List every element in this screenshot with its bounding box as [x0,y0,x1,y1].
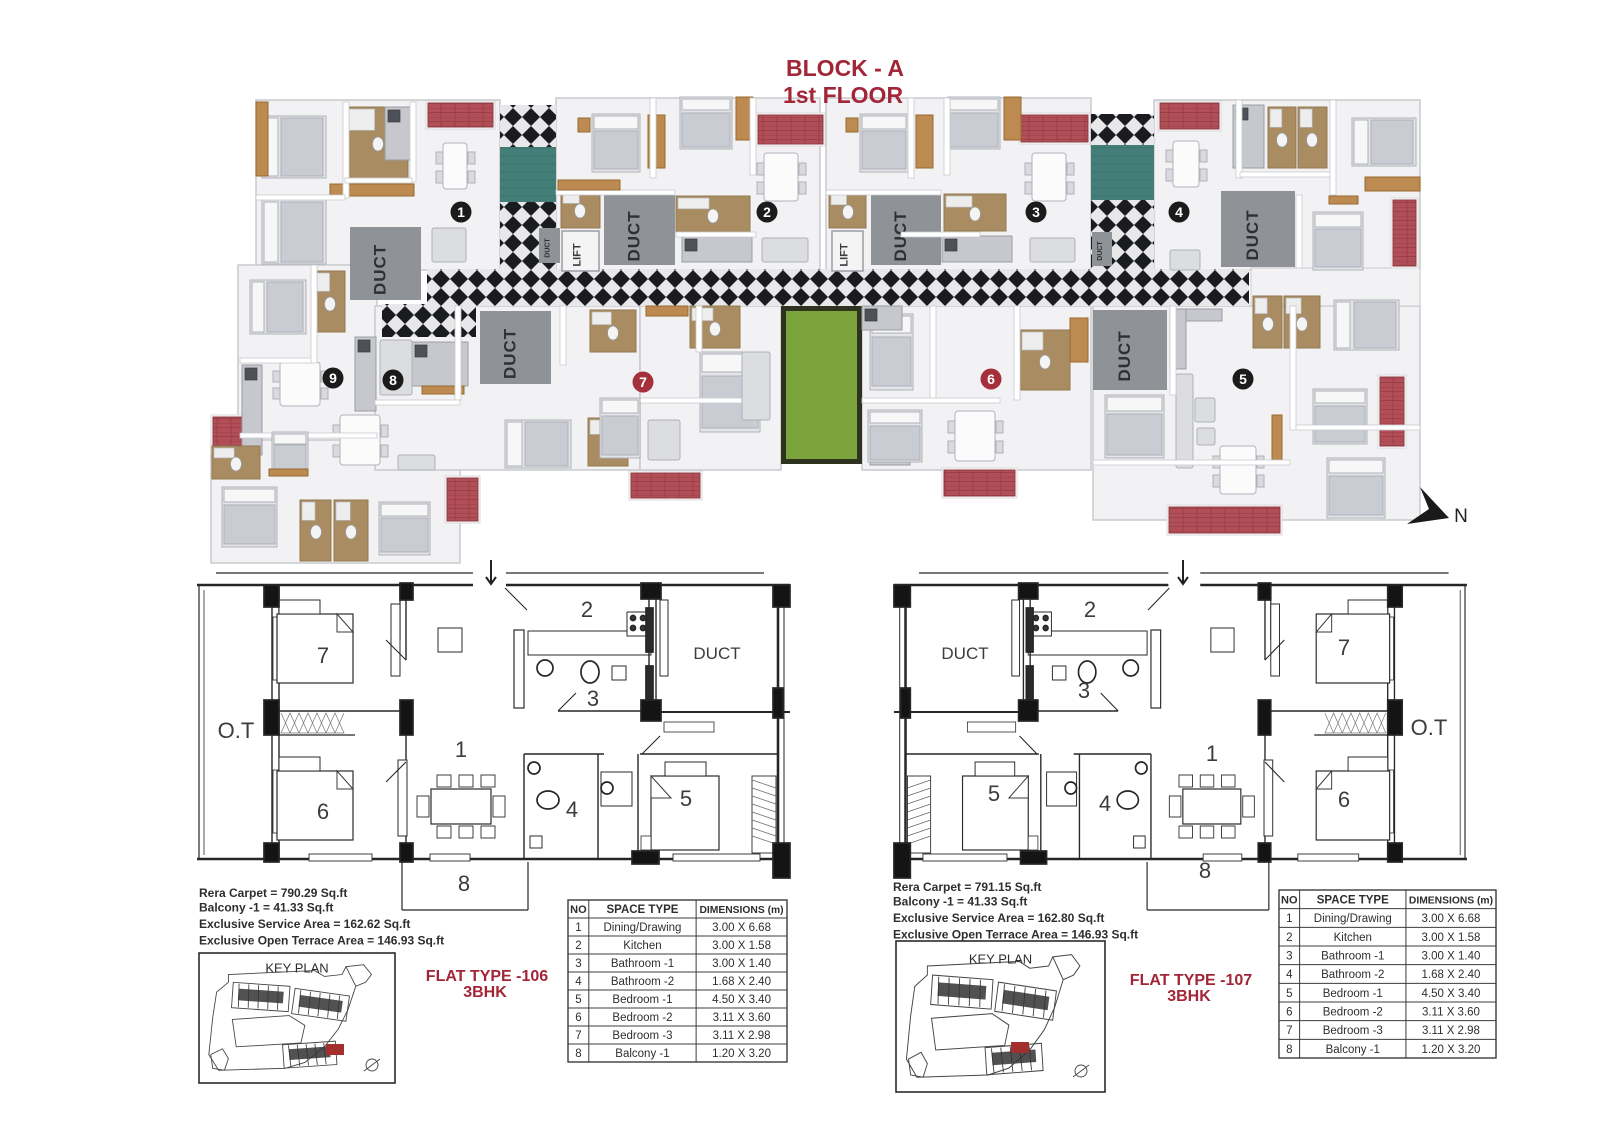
svg-text:Bedroom -2: Bedroom -2 [1323,1006,1383,1018]
svg-text:3.00 X 6.68: 3.00 X 6.68 [712,922,771,934]
svg-text:Dining/Drawing: Dining/Drawing [603,922,681,934]
svg-text:Bedroom -3: Bedroom -3 [612,1030,672,1042]
svg-text:DUCT: DUCT [1243,209,1262,260]
svg-text:9: 9 [329,370,337,386]
svg-text:8: 8 [575,1048,581,1060]
svg-text:BLOCK - A: BLOCK - A [786,55,904,81]
svg-text:Bathroom -2: Bathroom -2 [1321,969,1384,981]
svg-text:KEY PLAN: KEY PLAN [969,952,1032,967]
svg-text:4.50 X 3.40: 4.50 X 3.40 [712,994,771,1006]
svg-text:3.00 X 1.40: 3.00 X 1.40 [1422,950,1481,962]
svg-text:3: 3 [1286,950,1292,962]
svg-text:2: 2 [575,940,581,952]
svg-text:3: 3 [575,958,581,970]
svg-text:3: 3 [587,686,599,711]
svg-text:Bedroom -1: Bedroom -1 [612,994,672,1006]
svg-text:DIMENSIONS (m): DIMENSIONS (m) [700,905,784,916]
svg-text:LIFT: LIFT [839,243,851,266]
svg-text:DIMENSIONS (m): DIMENSIONS (m) [1409,895,1493,906]
svg-text:3.11 X 2.98: 3.11 X 2.98 [1422,1025,1480,1037]
svg-text:NO: NO [1281,894,1298,906]
svg-text:DUCT: DUCT [941,644,988,663]
svg-text:8: 8 [389,372,397,388]
svg-text:LIFT: LIFT [572,243,584,266]
svg-text:6: 6 [1338,787,1350,812]
svg-text:Exclusive Service Area = 162.8: Exclusive Service Area = 162.80 Sq.ft [893,911,1104,925]
svg-text:3.00 X 1.58: 3.00 X 1.58 [1422,932,1481,944]
svg-text:2: 2 [1286,932,1292,944]
svg-text:1.68 X 2.40: 1.68 X 2.40 [712,976,771,988]
svg-text:4: 4 [1099,791,1111,816]
svg-text:7: 7 [575,1030,581,1042]
svg-text:Balcony -1 = 41.33 Sq.ft: Balcony -1 = 41.33 Sq.ft [893,895,1027,909]
svg-text:5: 5 [575,994,581,1006]
svg-text:3.00 X 1.58: 3.00 X 1.58 [712,940,771,952]
svg-text:3.11 X 2.98: 3.11 X 2.98 [713,1030,771,1042]
svg-text:4: 4 [1175,204,1183,220]
svg-text:3: 3 [1032,204,1040,220]
svg-text:1.20 X 3.20: 1.20 X 3.20 [712,1048,771,1060]
svg-text:Bedroom -3: Bedroom -3 [1323,1025,1383,1037]
svg-text:5: 5 [988,781,1000,806]
svg-text:6: 6 [1286,1006,1292,1018]
svg-text:Bathroom -1: Bathroom -1 [1321,950,1384,962]
svg-text:Balcony -1 = 41.33 Sq.ft: Balcony -1 = 41.33 Sq.ft [199,901,333,915]
svg-text:1: 1 [575,922,581,934]
svg-text:1.20 X 3.20: 1.20 X 3.20 [1422,1044,1481,1056]
svg-text:5: 5 [680,786,692,811]
svg-text:SPACE TYPE: SPACE TYPE [606,904,678,916]
svg-text:1: 1 [455,737,467,762]
svg-text:FLAT TYPE -107: FLAT TYPE -107 [1130,972,1252,989]
svg-text:Exclusive Open Terrace Area =: Exclusive Open Terrace Area = 146.93 Sq.… [199,934,444,948]
svg-text:1st FLOOR: 1st FLOOR [783,82,904,108]
svg-text:1: 1 [457,204,465,220]
svg-text:Rera Carpet = 790.29 Sq.ft: Rera Carpet = 790.29 Sq.ft [199,886,347,900]
svg-text:Bathroom -2: Bathroom -2 [611,976,674,988]
svg-text:DUCT: DUCT [545,238,552,258]
svg-text:SPACE TYPE: SPACE TYPE [1317,894,1389,906]
svg-text:7: 7 [639,374,647,390]
svg-text:1: 1 [1206,741,1218,766]
svg-text:3.00 X 6.68: 3.00 X 6.68 [1422,913,1481,925]
svg-text:7: 7 [317,643,329,668]
svg-text:3.11 X 3.60: 3.11 X 3.60 [1422,1006,1480,1018]
svg-text:Bedroom -2: Bedroom -2 [612,1012,672,1024]
svg-text:1.68 X 2.40: 1.68 X 2.40 [1422,969,1481,981]
svg-text:3BHK: 3BHK [1167,988,1211,1005]
svg-text:O.T: O.T [218,718,255,743]
svg-text:8: 8 [1286,1044,1292,1056]
svg-text:8: 8 [1199,858,1211,883]
svg-text:DUCT: DUCT [693,644,740,663]
svg-text:8: 8 [458,871,470,896]
svg-text:4: 4 [1286,969,1293,981]
svg-text:Bedroom -1: Bedroom -1 [1323,988,1383,1000]
svg-text:5: 5 [1239,371,1247,387]
svg-text:3BHK: 3BHK [463,984,507,1001]
svg-text:FLAT TYPE -106: FLAT TYPE -106 [426,968,548,985]
svg-text:6: 6 [575,1012,581,1024]
svg-text:N: N [1454,506,1468,527]
svg-text:DUCT: DUCT [371,244,390,295]
svg-text:5: 5 [1286,988,1292,1000]
svg-text:7: 7 [1338,635,1350,660]
svg-text:DUCT: DUCT [1097,241,1104,261]
svg-text:Kitchen: Kitchen [1334,932,1372,944]
svg-text:2: 2 [1084,597,1096,622]
svg-text:6: 6 [987,371,995,387]
svg-text:3.11 X 3.60: 3.11 X 3.60 [713,1012,771,1024]
svg-text:3.00 X 1.40: 3.00 X 1.40 [712,958,771,970]
svg-text:DUCT: DUCT [625,210,644,261]
svg-text:NO: NO [570,904,587,916]
svg-text:1: 1 [1286,913,1292,925]
svg-text:Kitchen: Kitchen [623,940,661,952]
svg-text:7: 7 [1286,1025,1292,1037]
svg-text:O.T: O.T [1411,715,1448,740]
svg-text:Exclusive Service Area = 162.6: Exclusive Service Area = 162.62 Sq.ft [199,917,410,931]
svg-text:Balcony -1: Balcony -1 [615,1048,669,1060]
svg-text:Dining/Drawing: Dining/Drawing [1314,913,1392,925]
svg-text:6: 6 [317,799,329,824]
svg-text:Exclusive Open Terrace Area =: Exclusive Open Terrace Area = 146.93 Sq.… [893,928,1138,942]
svg-text:4: 4 [566,797,578,822]
svg-text:Bathroom -1: Bathroom -1 [611,958,674,970]
svg-text:2: 2 [763,204,771,220]
svg-text:2: 2 [581,597,593,622]
svg-text:Balcony -1: Balcony -1 [1326,1044,1380,1056]
svg-text:DUCT: DUCT [501,328,520,379]
svg-text:3: 3 [1078,678,1090,703]
svg-text:4: 4 [575,976,582,988]
svg-text:DUCT: DUCT [1115,330,1134,381]
svg-text:4.50 X 3.40: 4.50 X 3.40 [1422,988,1481,1000]
svg-text:Rera Carpet = 791.15 Sq.ft: Rera Carpet = 791.15 Sq.ft [893,880,1041,894]
